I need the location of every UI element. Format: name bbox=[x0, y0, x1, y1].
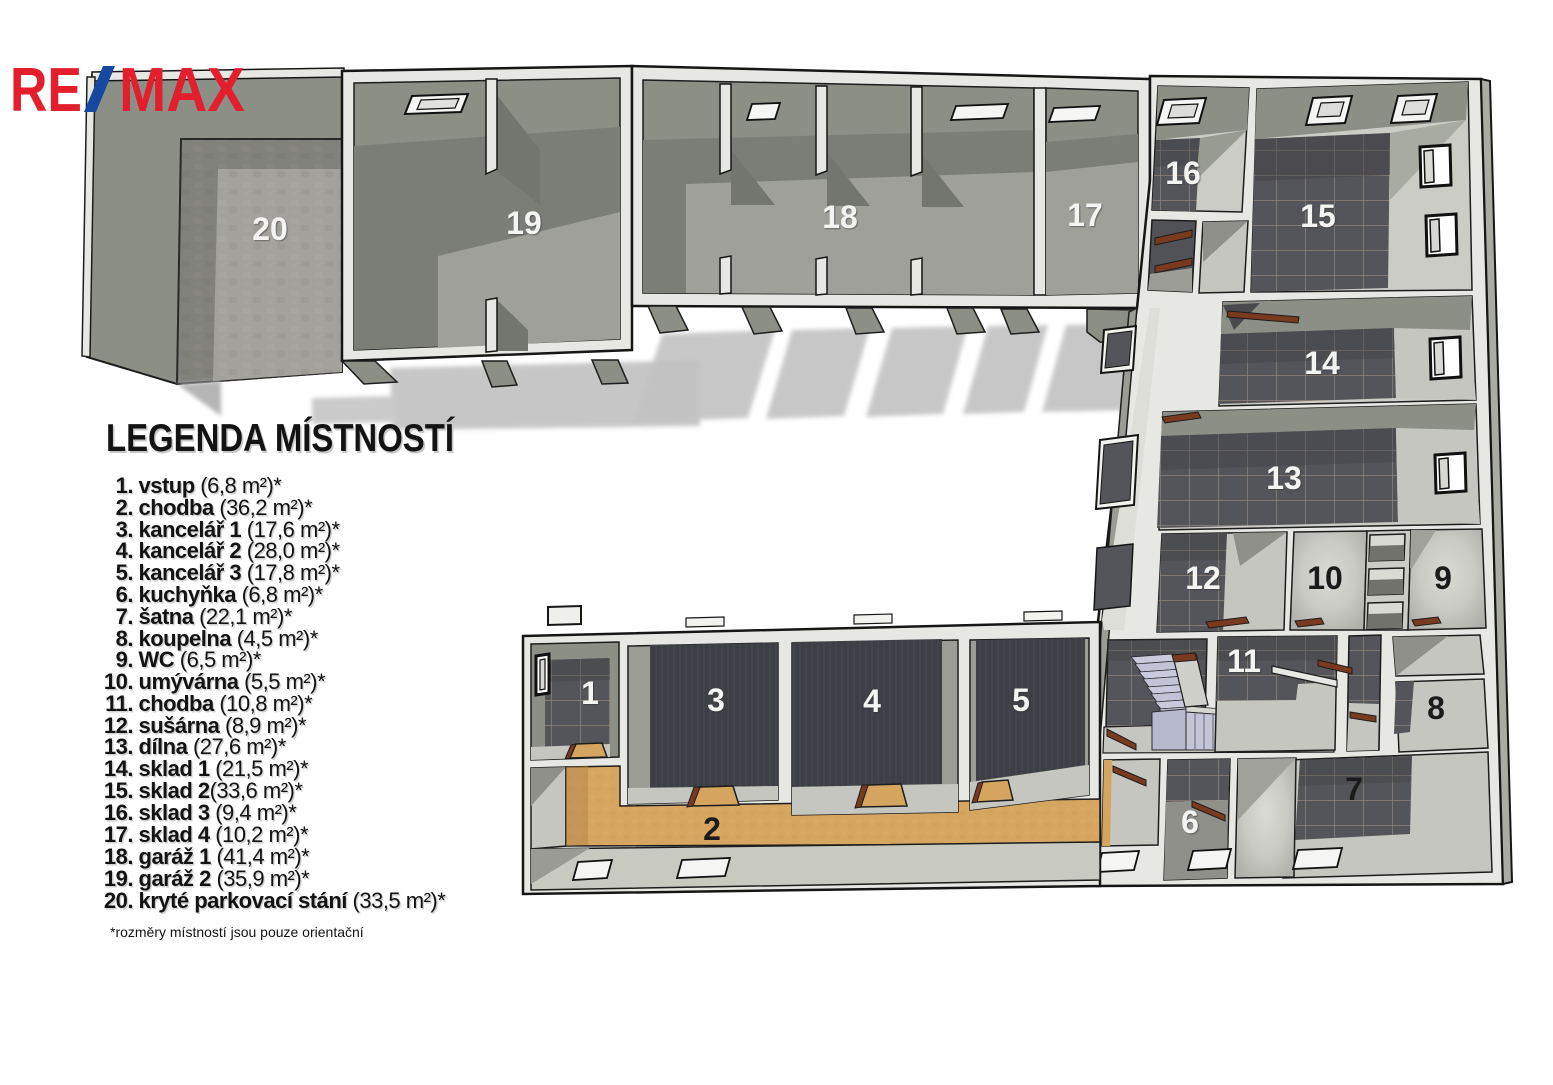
svg-text:8: 8 bbox=[1427, 690, 1445, 726]
svg-text:LEGENDA MÍSTNOSTÍ: LEGENDA MÍSTNOSTÍ bbox=[106, 416, 455, 460]
svg-text:13: 13 bbox=[1266, 460, 1302, 496]
svg-text:19: 19 bbox=[506, 205, 542, 241]
svg-text:9: 9 bbox=[1434, 560, 1452, 596]
svg-text:20: 20 bbox=[252, 211, 288, 247]
svg-text:3: 3 bbox=[707, 682, 725, 718]
svg-text:11: 11 bbox=[1227, 643, 1261, 679]
svg-text:1: 1 bbox=[581, 675, 599, 711]
svg-text:10: 10 bbox=[1307, 560, 1343, 596]
svg-text:18: 18 bbox=[822, 199, 858, 235]
svg-text:MAX: MAX bbox=[119, 56, 245, 125]
svg-text:*rozměry místností jsou pouze: *rozměry místností jsou pouze orientační bbox=[110, 924, 364, 940]
svg-text:14: 14 bbox=[1304, 345, 1340, 381]
svg-text:15: 15 bbox=[1300, 198, 1336, 234]
svg-text:RE: RE bbox=[10, 56, 82, 125]
svg-text:kryté parkovací stání (33,5 m²: kryté parkovací stání (33,5 m²)* bbox=[139, 888, 447, 913]
svg-text:17: 17 bbox=[1067, 197, 1103, 233]
svg-text:5: 5 bbox=[1012, 682, 1030, 718]
svg-text:12: 12 bbox=[1185, 560, 1221, 596]
svg-text:6: 6 bbox=[1181, 804, 1199, 840]
svg-text:20.: 20. bbox=[104, 888, 133, 913]
svg-text:2: 2 bbox=[703, 811, 721, 847]
svg-text:7: 7 bbox=[1345, 771, 1363, 807]
svg-text:16: 16 bbox=[1165, 155, 1201, 191]
svg-text:4: 4 bbox=[863, 683, 881, 719]
